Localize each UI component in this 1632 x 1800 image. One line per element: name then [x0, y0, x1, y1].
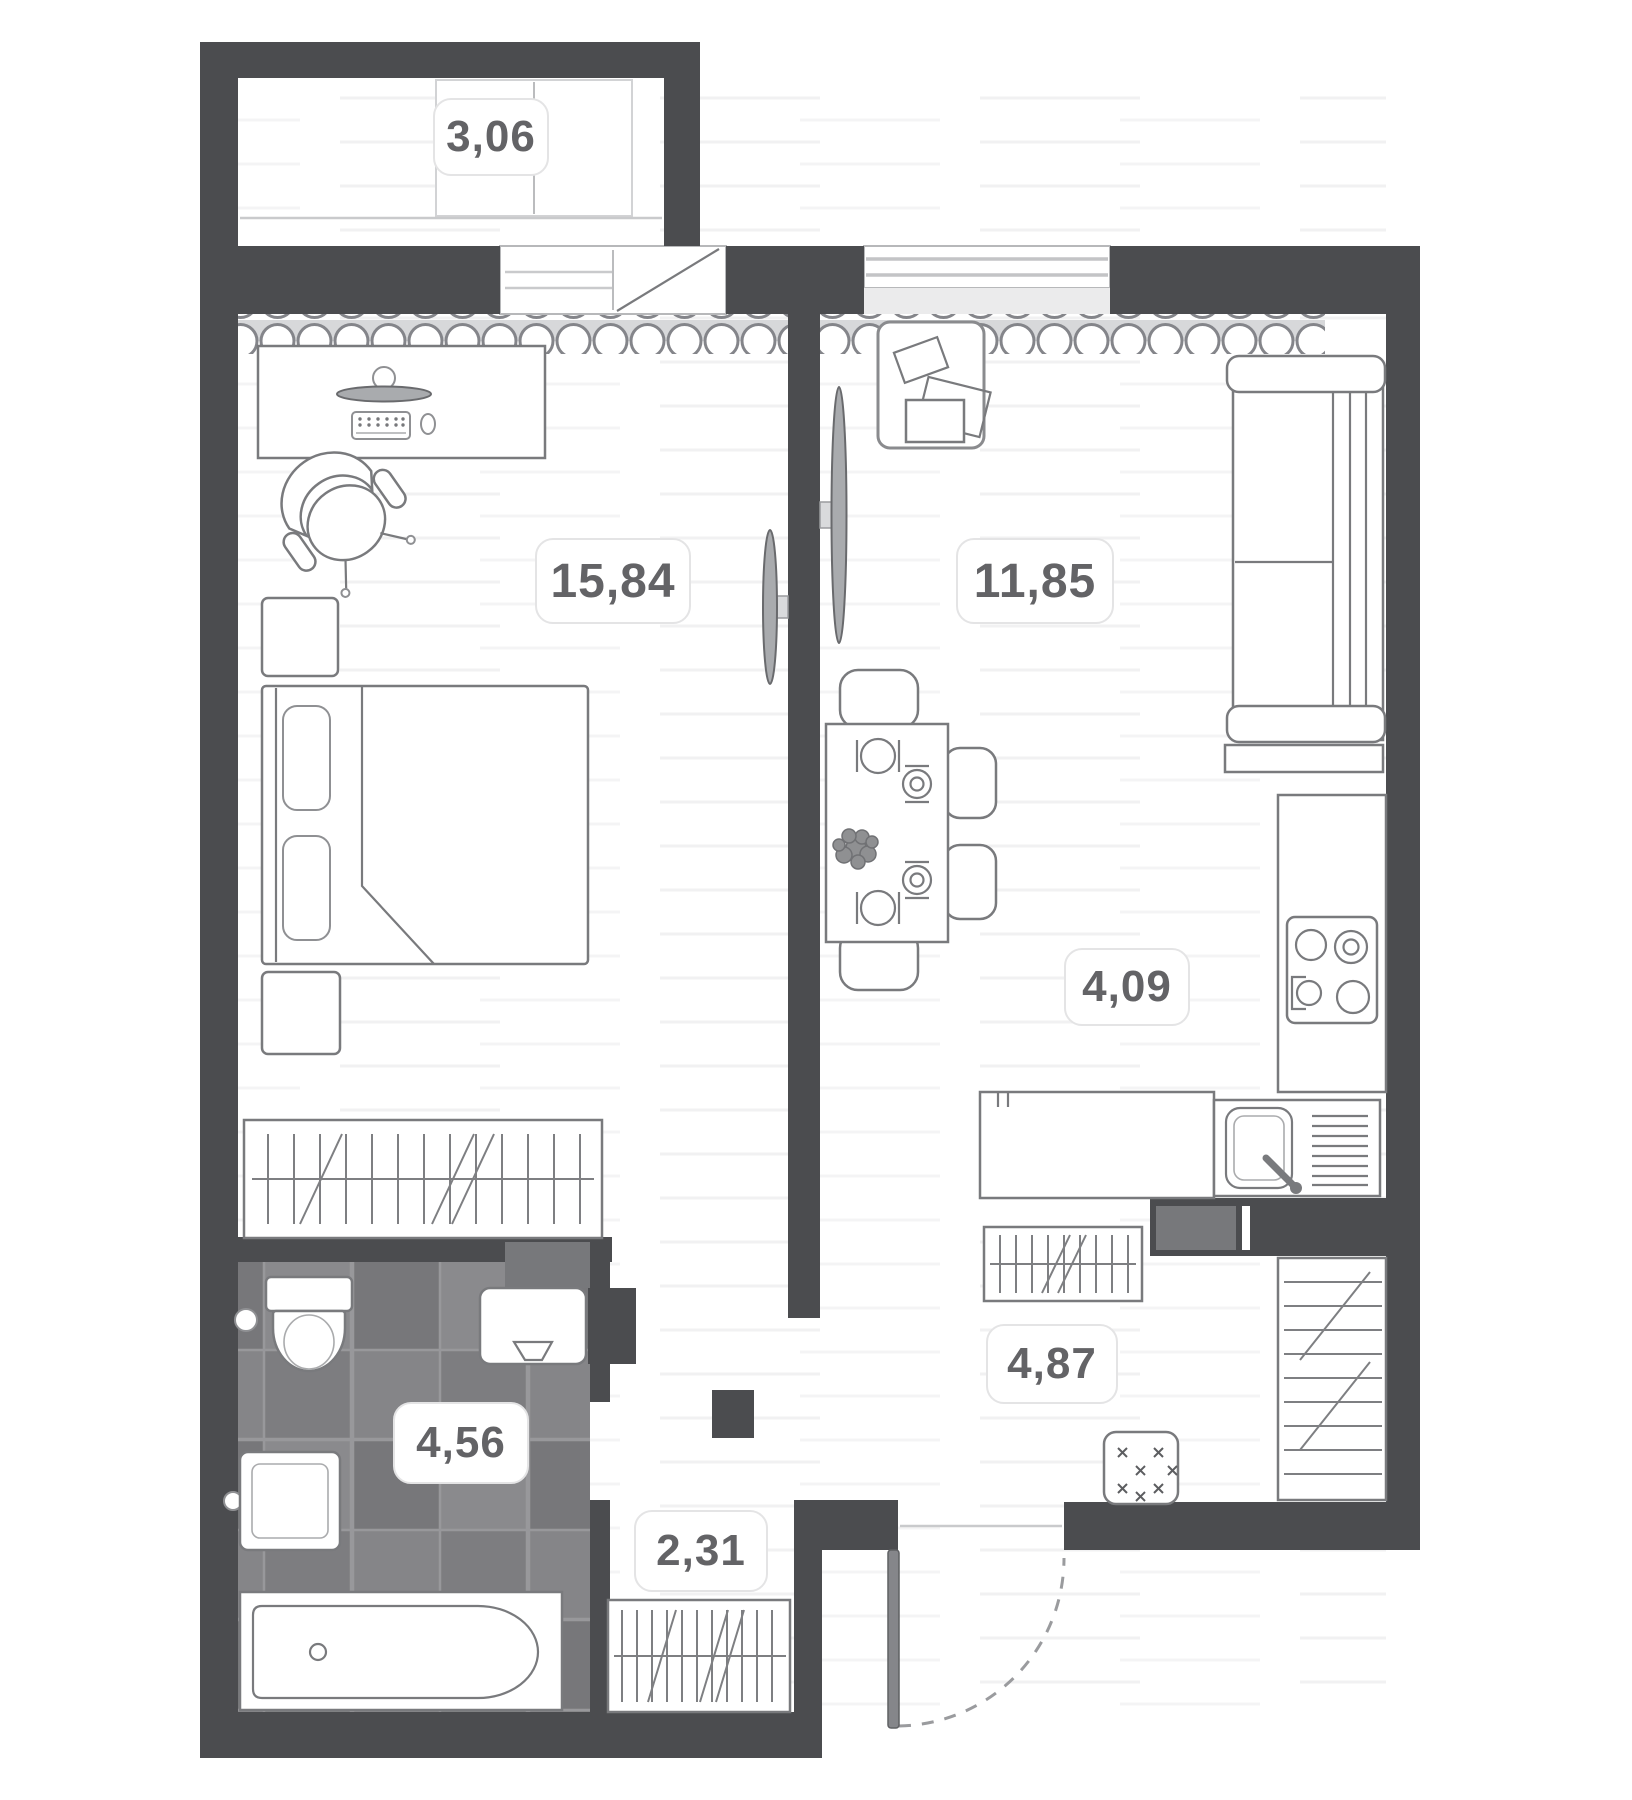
wall-bottom — [200, 1712, 822, 1758]
bed — [262, 686, 588, 964]
wall-bottom-hallway-left — [822, 1500, 898, 1550]
keyboard-icon — [352, 412, 410, 439]
kitchen-sink-icon — [1214, 1100, 1380, 1196]
wall-middle — [788, 246, 820, 1318]
sofa — [1227, 356, 1385, 742]
duct-box — [1156, 1206, 1236, 1250]
tall-wardrobe — [1278, 1258, 1386, 1500]
picture-frame — [878, 322, 991, 448]
washing-machine — [480, 1288, 586, 1364]
kitchen-cabinet — [1225, 745, 1383, 772]
washer-counter — [505, 1242, 590, 1288]
wall-stub — [712, 1390, 754, 1438]
floor-plan-drawing — [0, 0, 1632, 1800]
wall-right — [1386, 246, 1420, 1550]
pillow — [283, 706, 330, 810]
room-label-living: 11,85 — [956, 538, 1114, 624]
dining-chair — [944, 748, 996, 818]
wall-duct — [1156, 1206, 1250, 1250]
nightstand — [262, 972, 340, 1054]
wall-bottom-hallway-right — [1064, 1502, 1420, 1550]
pouf — [1104, 1432, 1178, 1504]
kitchen-counter-bottom — [980, 1092, 1214, 1198]
nightstand — [262, 598, 338, 676]
wall-top-right — [1110, 246, 1420, 314]
floor-plan: 3,06 15,84 11,85 4,09 4,87 4,56 2,31 — [0, 0, 1632, 1800]
doormat — [608, 1600, 790, 1712]
monitor-icon — [337, 387, 431, 402]
bedroom-wardrobe — [244, 1120, 602, 1238]
water-outlet-icon — [235, 1309, 257, 1331]
stove-icon — [1287, 917, 1377, 1023]
desk — [258, 346, 545, 458]
pillow — [283, 836, 330, 940]
dining-chair — [944, 845, 996, 919]
washbasin-icon — [224, 1452, 340, 1550]
bathtub-icon — [240, 1592, 562, 1710]
balcony-door — [500, 246, 726, 314]
door-leaf — [888, 1550, 899, 1728]
dining-chair — [840, 670, 918, 728]
room-label-bathroom: 4,56 — [393, 1402, 529, 1484]
room-label-kitchen: 4,09 — [1064, 948, 1190, 1026]
room-label-bedroom: 15,84 — [535, 538, 691, 624]
window — [864, 246, 1110, 314]
room-label-corridor: 2,31 — [634, 1510, 768, 1592]
wall-washer-nook — [588, 1288, 636, 1364]
room-label-balcony: 3,06 — [433, 98, 549, 176]
shoe-rack — [984, 1227, 1142, 1301]
wall-top-balcony — [200, 42, 700, 78]
wall-balcony-divider-a — [200, 246, 500, 314]
room-label-hallway: 4,87 — [986, 1324, 1118, 1404]
mouse-icon — [421, 414, 435, 434]
wall-balcony-right — [664, 42, 700, 246]
